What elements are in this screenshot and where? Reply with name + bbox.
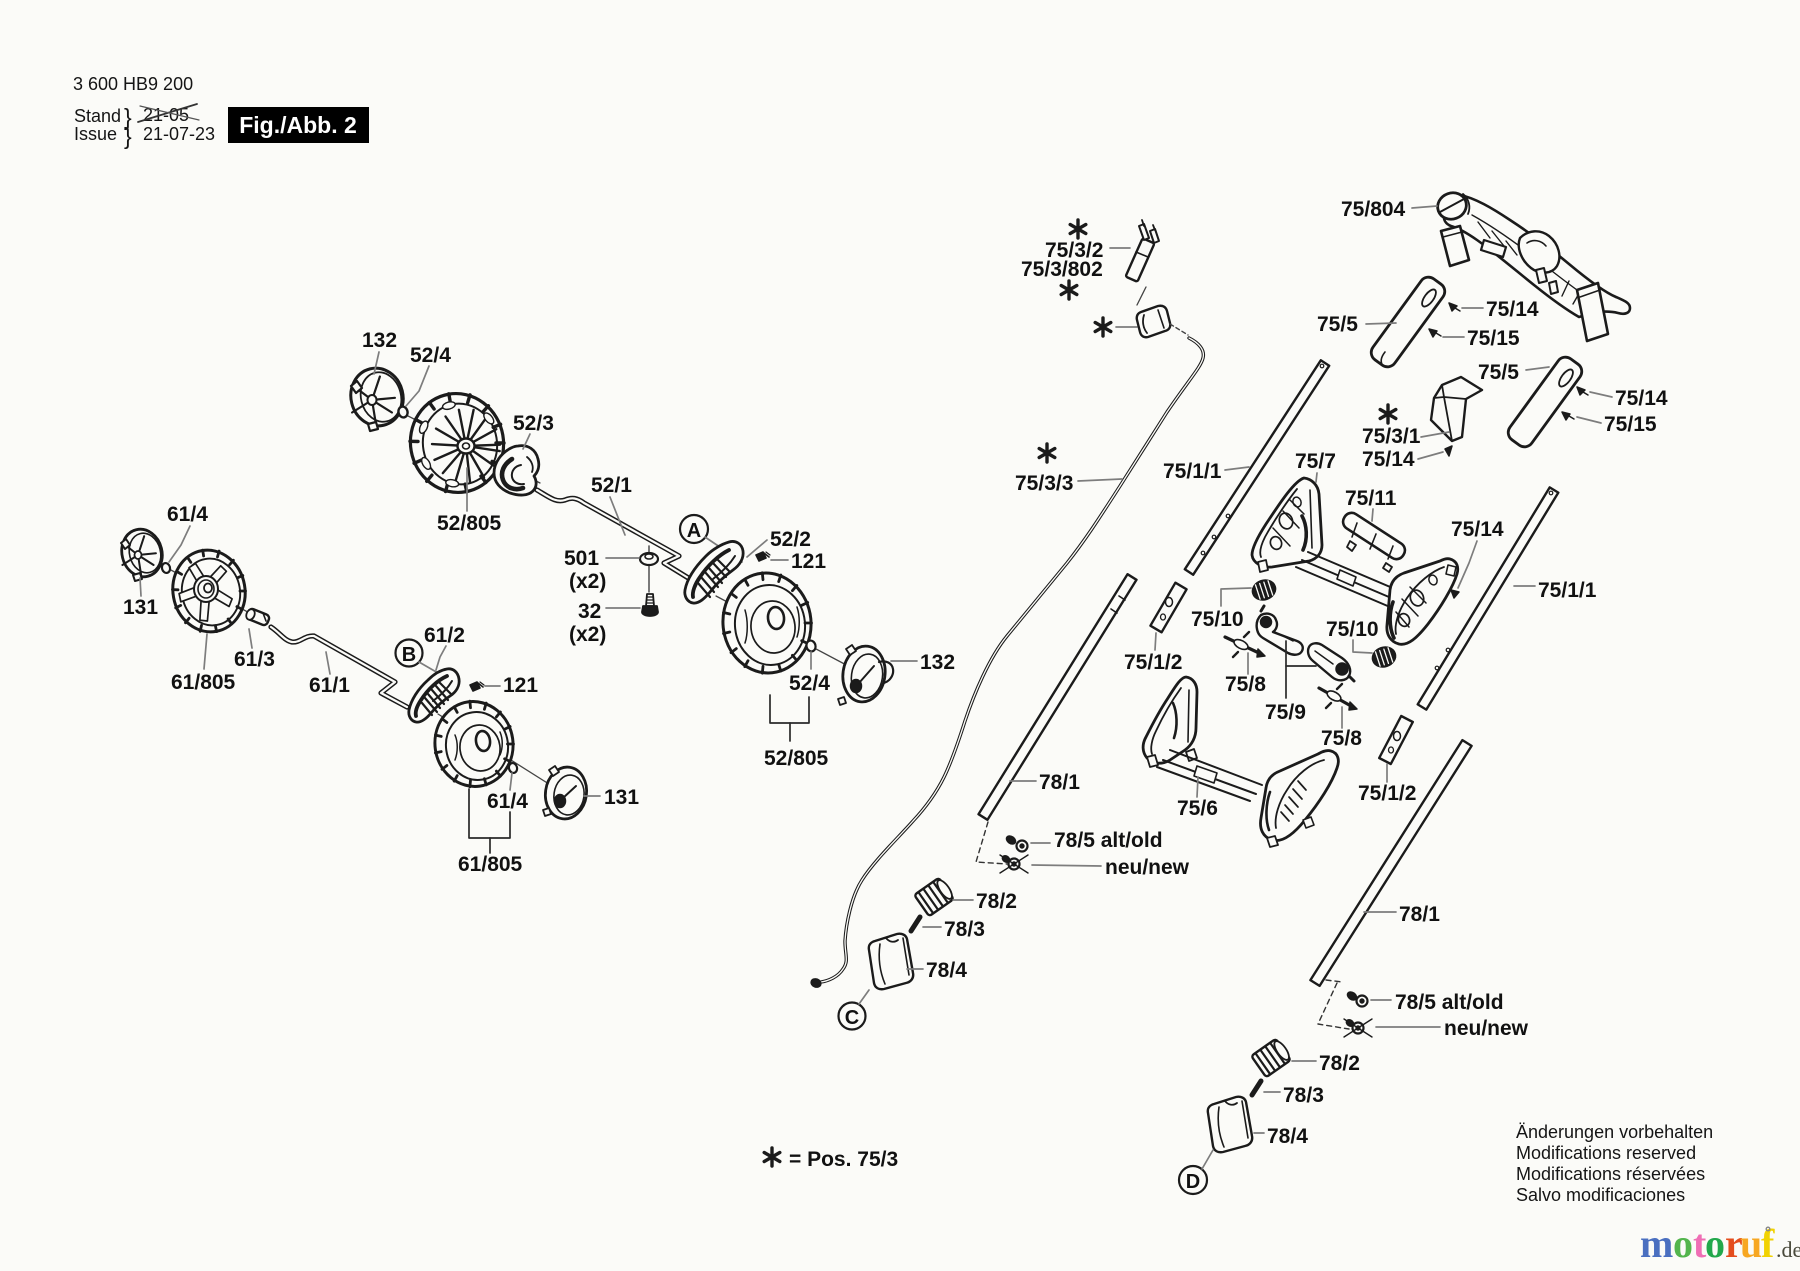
svg-text:78/5 alt/old: 78/5 alt/old [1395,991,1504,1014]
svg-text:75/14: 75/14 [1486,298,1539,321]
svg-text:C: C [845,1007,859,1029]
svg-text:75/5: 75/5 [1317,313,1358,336]
svg-text:78/4: 78/4 [1267,1125,1308,1148]
svg-text:= Pos. 75/3: = Pos. 75/3 [789,1148,898,1171]
svg-text:61/805: 61/805 [458,853,523,876]
svg-text:Modifications reserved: Modifications reserved [1516,1143,1696,1163]
svg-text:3 600 HB9 200: 3 600 HB9 200 [73,74,193,94]
svg-text:75/8: 75/8 [1321,727,1362,750]
svg-text:75/14: 75/14 [1615,387,1668,410]
svg-text:52/2: 52/2 [770,528,811,551]
svg-text:78/2: 78/2 [976,890,1017,913]
svg-text:neu/new: neu/new [1444,1017,1529,1040]
svg-text:Modifications réservées: Modifications réservées [1516,1164,1705,1184]
svg-text:75/3/1: 75/3/1 [1362,425,1421,448]
svg-text:75/1/1: 75/1/1 [1538,579,1597,602]
svg-text:75/6: 75/6 [1177,797,1218,820]
svg-text:78/3: 78/3 [1283,1084,1324,1107]
svg-text:61/805: 61/805 [171,671,236,694]
svg-text:52/4: 52/4 [410,344,451,367]
svg-text:75/1/2: 75/1/2 [1124,651,1182,674]
svg-text:75/8: 75/8 [1225,673,1266,696]
svg-text:131: 131 [604,786,639,809]
svg-text:75/804: 75/804 [1341,198,1406,221]
svg-text:75/7: 75/7 [1295,450,1336,473]
svg-text:78/3: 78/3 [944,918,985,941]
svg-text:.de: .de [1776,1237,1800,1262]
svg-text:78/1: 78/1 [1399,903,1440,926]
svg-text:52/3: 52/3 [513,412,554,435]
svg-text:75/10: 75/10 [1326,618,1379,641]
svg-text:Issue: Issue [74,124,117,144]
svg-text:o: o [1673,1221,1693,1266]
svg-text:o: o [1705,1221,1725,1266]
svg-text:61/3: 61/3 [234,648,275,671]
svg-text:78/4: 78/4 [926,959,967,982]
svg-text:(x2): (x2) [569,570,606,593]
svg-text:61/2: 61/2 [424,624,465,647]
svg-text:u: u [1740,1221,1762,1266]
svg-text:75/15: 75/15 [1604,413,1657,436]
svg-text:78/5 alt/old: 78/5 alt/old [1054,829,1163,852]
svg-text:75/14: 75/14 [1451,518,1504,541]
svg-text:Stand: Stand [74,106,121,126]
svg-text:75/5: 75/5 [1478,361,1519,384]
svg-text:Salvo modificaciones: Salvo modificaciones [1516,1185,1685,1205]
svg-text:52/4: 52/4 [789,672,830,695]
svg-text:75/1/1: 75/1/1 [1163,460,1222,483]
svg-text:}: } [124,123,132,149]
svg-text:61/4: 61/4 [167,503,208,526]
svg-text:75/10: 75/10 [1191,608,1244,631]
svg-text:m: m [1640,1221,1673,1266]
svg-text:121: 121 [503,674,538,697]
svg-text:131: 131 [123,596,158,619]
svg-text:501: 501 [564,547,599,570]
svg-text:21-07-23: 21-07-23 [143,124,215,144]
svg-text:D: D [1186,1171,1200,1193]
svg-text:75/1/2: 75/1/2 [1358,782,1416,805]
svg-text:52/1: 52/1 [591,474,632,497]
svg-text:78/2: 78/2 [1319,1052,1360,1075]
svg-text:132: 132 [920,651,955,674]
svg-text:neu/new: neu/new [1105,856,1190,879]
svg-text:75/9: 75/9 [1265,701,1306,724]
svg-text:Änderungen vorbehalten: Änderungen vorbehalten [1516,1122,1713,1142]
svg-text:75/3/802: 75/3/802 [1021,258,1103,281]
svg-text:A: A [687,520,701,542]
svg-text:61/1: 61/1 [309,674,350,697]
svg-text:B: B [402,644,416,666]
svg-text:32: 32 [578,600,601,623]
svg-text:78/1: 78/1 [1039,771,1080,794]
svg-text:75/14: 75/14 [1362,448,1415,471]
svg-text:Fig./Abb. 2: Fig./Abb. 2 [239,112,357,138]
svg-text:121: 121 [791,550,826,573]
svg-text:52/805: 52/805 [764,747,829,770]
svg-text:75/3/3: 75/3/3 [1015,472,1073,495]
svg-text:52/805: 52/805 [437,512,502,535]
svg-text:(x2): (x2) [569,623,606,646]
svg-text:61/4: 61/4 [487,790,528,813]
svg-text:75/11: 75/11 [1345,487,1397,510]
svg-text:132: 132 [362,329,397,352]
svg-text:75/15: 75/15 [1467,327,1520,350]
